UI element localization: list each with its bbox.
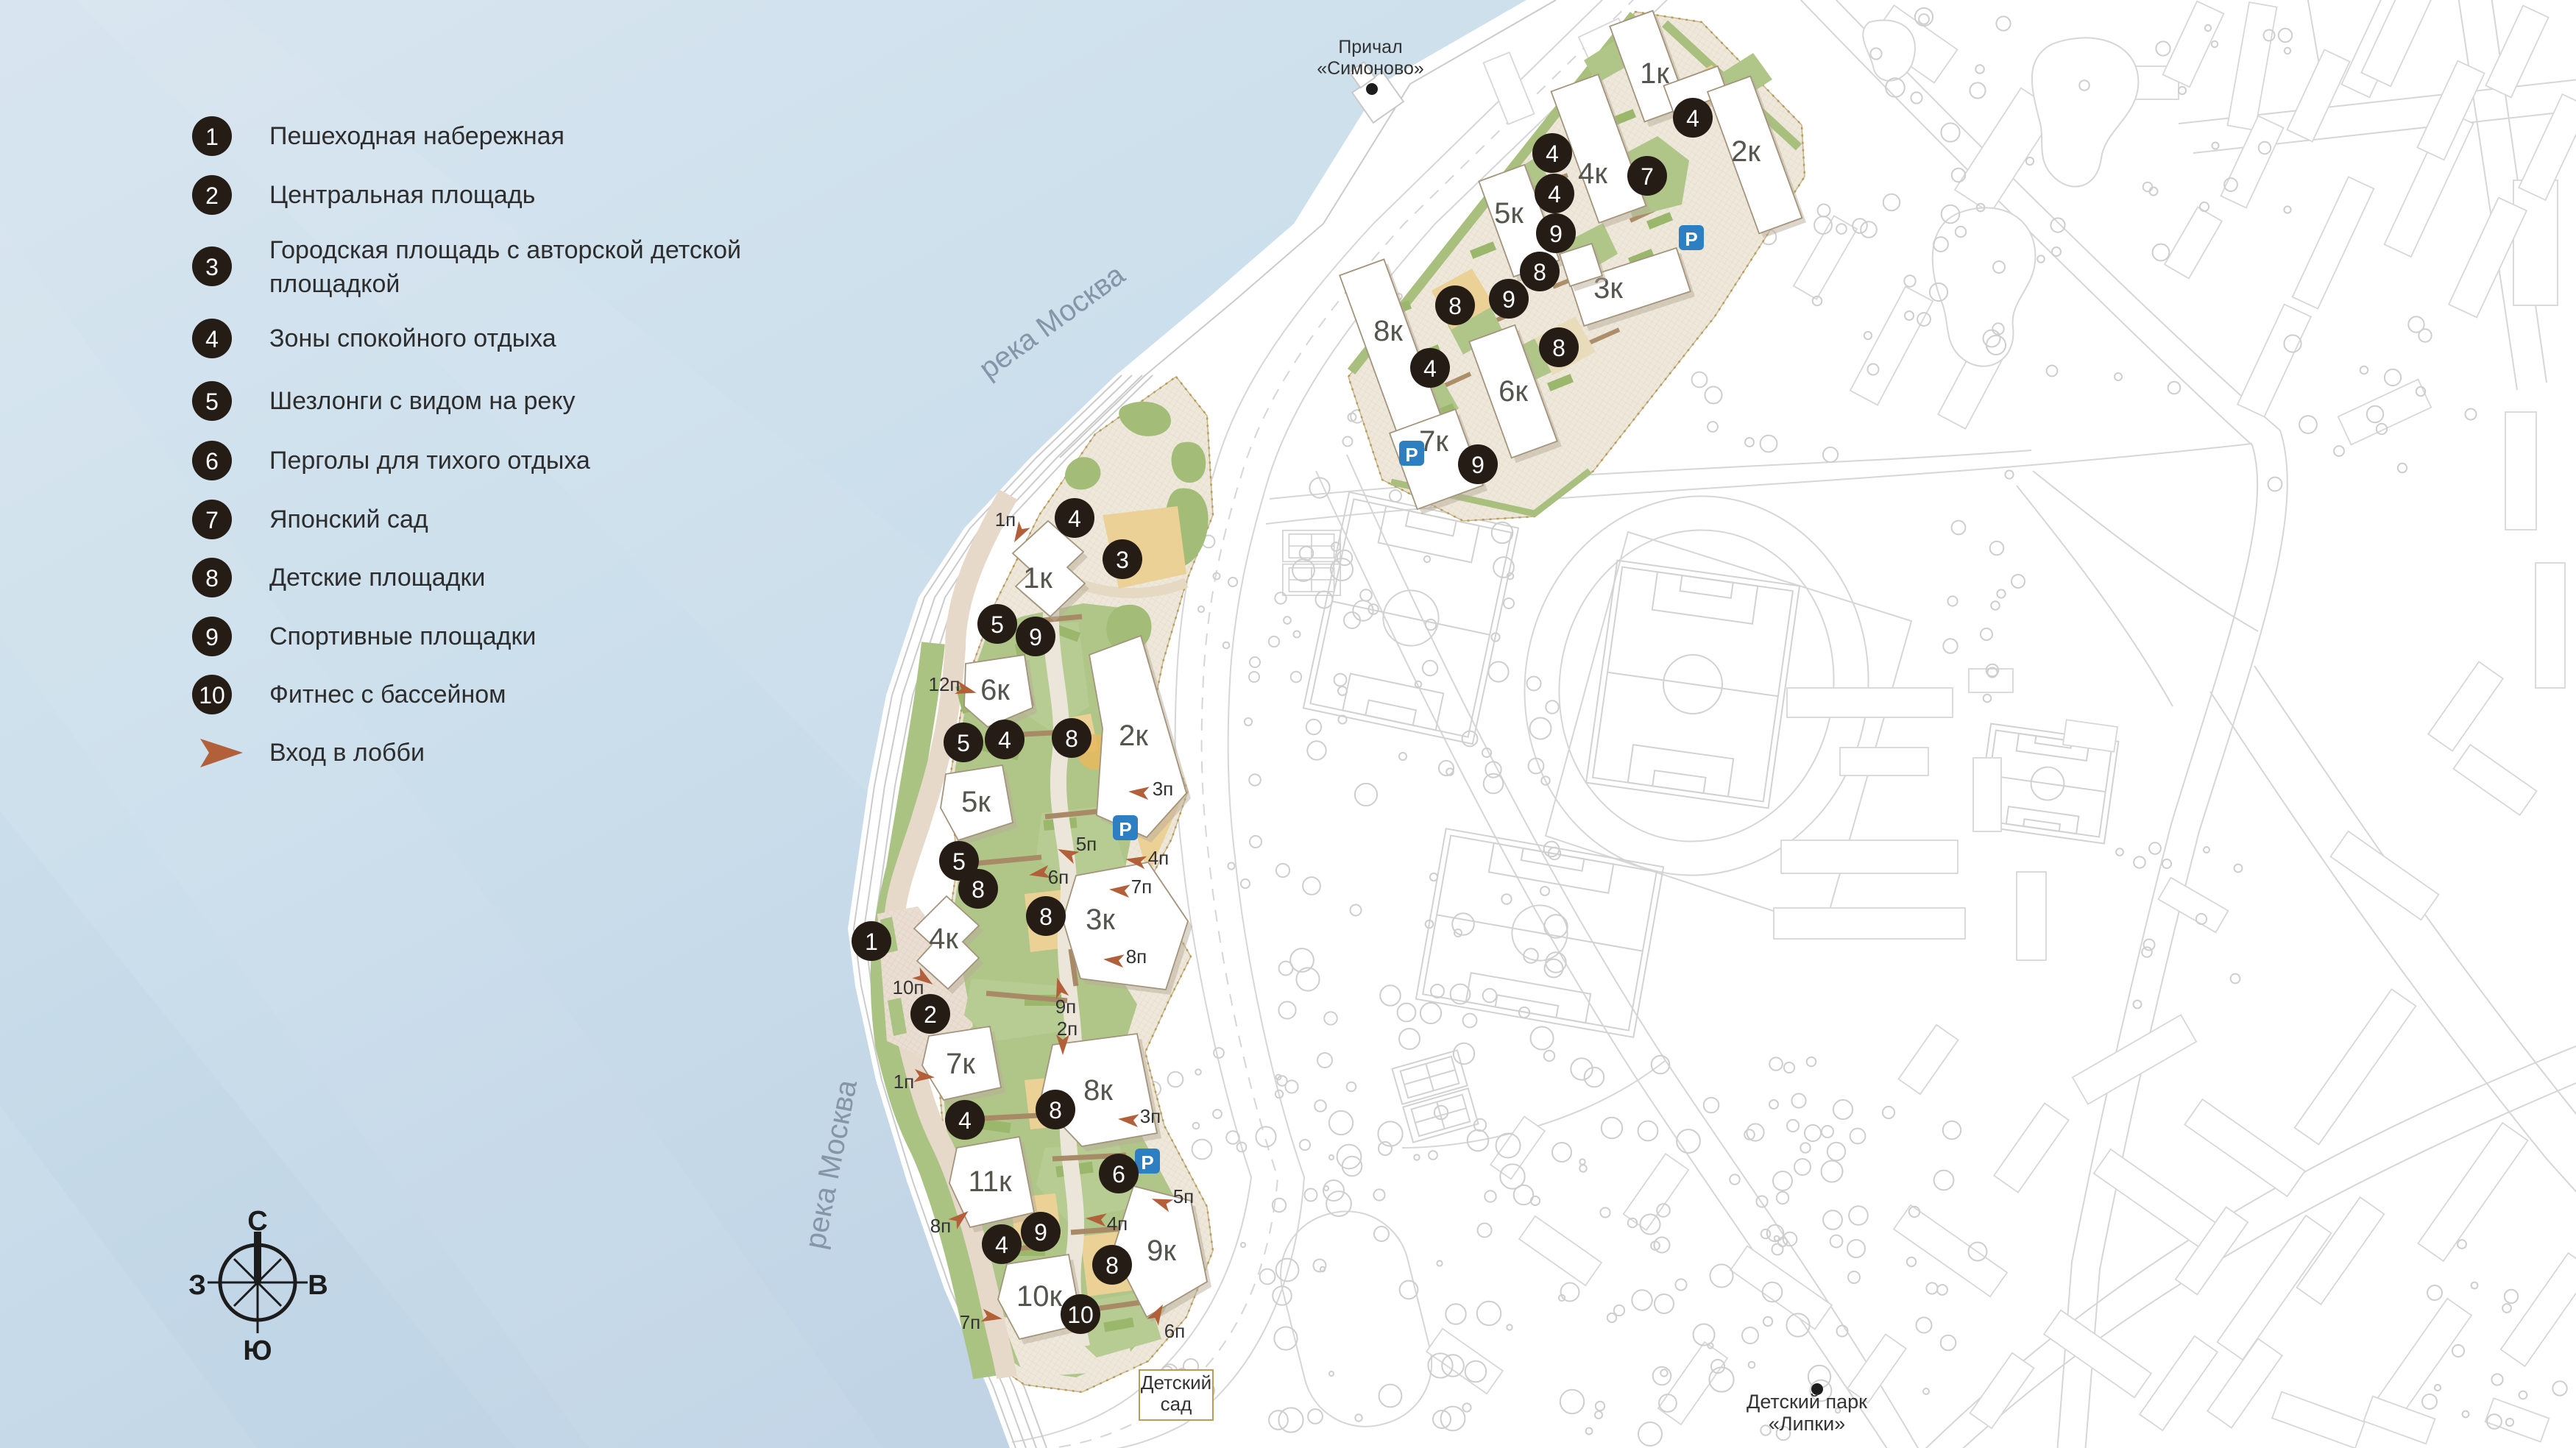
svg-text:7п: 7п <box>1131 876 1153 898</box>
svg-text:4: 4 <box>995 1232 1008 1258</box>
svg-text:3к: 3к <box>1086 904 1115 936</box>
svg-text:Зоны спокойного отдыха: Зоны спокойного отдыха <box>269 324 556 352</box>
svg-text:4: 4 <box>1546 141 1559 167</box>
svg-text:8: 8 <box>205 565 219 592</box>
svg-text:Японский сад: Японский сад <box>269 505 428 533</box>
svg-text:8: 8 <box>1448 293 1462 319</box>
svg-text:5п: 5п <box>1173 1185 1195 1207</box>
svg-text:В: В <box>308 1270 328 1301</box>
svg-text:Причал: Причал <box>1338 37 1402 57</box>
svg-text:3: 3 <box>205 254 219 280</box>
svg-text:Детские площадки: Детские площадки <box>269 564 485 592</box>
svg-text:P: P <box>1141 1151 1153 1174</box>
svg-text:З: З <box>188 1270 206 1301</box>
svg-text:1: 1 <box>205 124 219 150</box>
svg-text:2к: 2к <box>1119 720 1148 752</box>
svg-text:6п: 6п <box>1164 1320 1186 1342</box>
svg-text:7п: 7п <box>960 1311 981 1333</box>
svg-text:«Симоново»: «Симоново» <box>1317 58 1424 79</box>
svg-text:Ю: Ю <box>243 1335 272 1366</box>
svg-text:Детский парк: Детский парк <box>1747 1391 1867 1413</box>
svg-text:Перголы для тихого отдыха: Перголы для тихого отдыха <box>269 447 590 475</box>
svg-text:8: 8 <box>1039 904 1052 930</box>
svg-text:10: 10 <box>199 682 225 709</box>
svg-text:6: 6 <box>205 448 219 475</box>
svg-text:1п: 1п <box>995 508 1016 530</box>
svg-text:4: 4 <box>1423 355 1437 382</box>
svg-text:2: 2 <box>924 1001 937 1028</box>
svg-text:Пешеходная набережная: Пешеходная набережная <box>269 122 565 150</box>
svg-text:Детский: Детский <box>1141 1371 1211 1394</box>
svg-text:4: 4 <box>1686 105 1699 132</box>
svg-text:Фитнес с бассейном: Фитнес с бассейном <box>269 681 506 709</box>
svg-text:площадкой: площадкой <box>269 270 400 298</box>
svg-text:9: 9 <box>1502 286 1515 313</box>
svg-text:7: 7 <box>205 507 219 533</box>
svg-text:5п: 5п <box>1076 833 1097 855</box>
svg-text:9: 9 <box>205 624 219 650</box>
svg-text:4: 4 <box>1068 505 1081 532</box>
svg-text:9: 9 <box>1034 1219 1047 1246</box>
svg-text:1к: 1к <box>1023 562 1052 595</box>
svg-text:3: 3 <box>1116 547 1129 573</box>
svg-text:P: P <box>1119 818 1131 840</box>
svg-text:8: 8 <box>1065 725 1078 752</box>
svg-text:Центральная площадь: Центральная площадь <box>269 181 535 209</box>
svg-text:7к: 7к <box>946 1048 975 1080</box>
svg-text:8: 8 <box>972 876 985 903</box>
svg-text:С: С <box>247 1206 267 1237</box>
svg-text:3п: 3п <box>1153 778 1174 800</box>
svg-text:1: 1 <box>865 929 878 955</box>
svg-text:9: 9 <box>1549 221 1563 247</box>
svg-text:P: P <box>1405 444 1418 466</box>
svg-text:5к: 5к <box>1494 197 1524 230</box>
svg-text:6п: 6п <box>1048 866 1069 888</box>
svg-text:4: 4 <box>958 1107 972 1134</box>
svg-text:8: 8 <box>1105 1252 1119 1279</box>
svg-text:11к: 11к <box>968 1165 1012 1198</box>
svg-text:8п: 8п <box>1126 945 1147 968</box>
svg-text:7: 7 <box>1641 163 1654 190</box>
svg-text:Шезлонги с видом на реку: Шезлонги с видом на реку <box>269 387 576 415</box>
svg-text:6к: 6к <box>980 674 1010 706</box>
svg-text:4: 4 <box>998 727 1011 753</box>
svg-text:9к: 9к <box>1147 1235 1176 1267</box>
svg-text:12п: 12п <box>929 673 960 695</box>
svg-text:9п: 9п <box>1055 995 1077 1018</box>
svg-text:5: 5 <box>991 611 1004 638</box>
svg-text:5: 5 <box>205 388 219 415</box>
svg-text:8к: 8к <box>1373 315 1403 347</box>
svg-text:«Липки»: «Липки» <box>1769 1413 1845 1435</box>
svg-text:Спортивные площадки: Спортивные площадки <box>269 622 536 650</box>
svg-text:2к: 2к <box>1731 135 1761 168</box>
svg-text:4к: 4к <box>1578 157 1607 190</box>
svg-text:6: 6 <box>1112 1161 1125 1188</box>
svg-text:8к: 8к <box>1083 1074 1113 1107</box>
svg-text:9: 9 <box>1029 624 1042 650</box>
svg-text:4п: 4п <box>1148 847 1170 869</box>
svg-text:2: 2 <box>205 182 219 209</box>
svg-text:Вход в лобби: Вход в лобби <box>269 739 425 767</box>
svg-text:сад: сад <box>1161 1393 1192 1415</box>
svg-text:10к: 10к <box>1016 1280 1062 1313</box>
svg-text:10: 10 <box>1067 1302 1094 1328</box>
svg-text:4: 4 <box>205 326 219 352</box>
svg-text:5: 5 <box>952 848 966 875</box>
svg-text:5к: 5к <box>961 786 991 818</box>
svg-text:1п: 1п <box>894 1071 915 1093</box>
svg-text:9: 9 <box>1471 452 1485 478</box>
svg-text:8: 8 <box>1533 259 1546 285</box>
svg-text:4п: 4п <box>1107 1213 1128 1235</box>
svg-text:8: 8 <box>1552 335 1565 361</box>
svg-text:5: 5 <box>957 730 970 756</box>
svg-text:6к: 6к <box>1498 375 1528 408</box>
svg-text:3п: 3п <box>1140 1105 1161 1127</box>
svg-text:10п: 10п <box>893 976 924 998</box>
svg-text:2п: 2п <box>1057 1018 1078 1040</box>
svg-text:Городская площадь с авторской: Городская площадь с авторской детской <box>269 236 741 264</box>
svg-text:8: 8 <box>1049 1097 1062 1124</box>
svg-text:P: P <box>1685 228 1697 250</box>
svg-text:8п: 8п <box>930 1215 952 1237</box>
svg-text:4: 4 <box>1548 181 1561 207</box>
svg-text:4к: 4к <box>929 923 958 955</box>
